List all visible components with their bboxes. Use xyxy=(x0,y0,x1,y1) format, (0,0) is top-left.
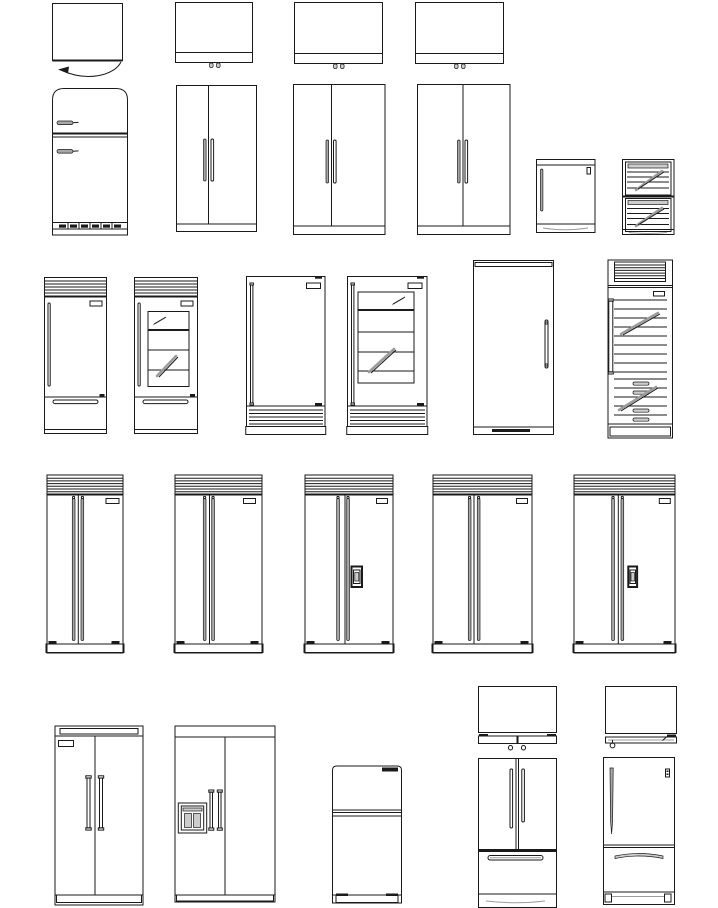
kick-tick-left xyxy=(49,641,57,644)
badge xyxy=(382,768,398,772)
block-plan-compact-door-swing[interactable] xyxy=(50,1,126,81)
left-handle xyxy=(458,140,461,183)
pedestal xyxy=(573,644,676,653)
block-sxs-grille-1[interactable] xyxy=(45,473,125,657)
freezer-handle xyxy=(57,121,79,125)
hinges xyxy=(210,63,221,68)
door-handles xyxy=(510,769,524,828)
block-french-door-bottom-freezer[interactable] xyxy=(476,756,559,908)
badge xyxy=(90,301,102,306)
cabinet-outline xyxy=(474,261,554,435)
block-top-freezer[interactable] xyxy=(330,763,404,905)
top-latch-mark xyxy=(417,277,424,279)
cabinet-outline xyxy=(606,687,677,734)
base-grille xyxy=(53,223,128,230)
kick-tick-right xyxy=(521,641,529,644)
kick-tick-right xyxy=(251,641,259,644)
block-plan-fridge-c[interactable] xyxy=(413,1,506,69)
block-wine-cooler-column[interactable] xyxy=(606,258,675,440)
cabinet-outline xyxy=(479,687,557,733)
top-grille xyxy=(433,478,532,494)
pedestal xyxy=(304,644,394,653)
block-single-door-bottom-freezer[interactable] xyxy=(601,755,677,908)
badge xyxy=(654,292,665,297)
latch-mark xyxy=(315,403,322,406)
door-handle xyxy=(351,283,354,405)
latch-mark xyxy=(190,394,195,397)
door-handle xyxy=(610,768,613,834)
door-handle xyxy=(250,283,253,405)
cabinet-outline xyxy=(537,160,596,233)
base-grille xyxy=(249,410,323,424)
wine-racks xyxy=(614,300,667,372)
block-column-fridge[interactable] xyxy=(471,258,556,440)
left-handle xyxy=(204,139,207,181)
cad-sheet xyxy=(0,0,718,908)
badge xyxy=(181,301,193,306)
cabinet-outline xyxy=(416,3,504,64)
cabinet-outline xyxy=(53,4,123,61)
kick-tick-right xyxy=(382,641,390,644)
cabinet-outline xyxy=(433,475,532,653)
hinge xyxy=(610,740,615,748)
door-handles xyxy=(337,496,350,640)
pedestal xyxy=(347,427,428,435)
pedestal xyxy=(174,644,263,653)
badge xyxy=(517,499,528,504)
block-sxs-capped-handles[interactable] xyxy=(53,724,145,907)
pedestal xyxy=(432,644,533,653)
pedestal xyxy=(610,427,671,436)
door-handle xyxy=(138,303,140,386)
door-handle xyxy=(541,169,543,211)
freezer-drawer-handle xyxy=(143,400,188,404)
door-handles xyxy=(209,790,223,830)
badge xyxy=(59,741,74,747)
base-shadow xyxy=(486,901,545,903)
block-undercounter-fridge[interactable] xyxy=(535,158,597,236)
pedestal xyxy=(177,895,274,901)
freezer-divider xyxy=(333,810,402,816)
upper-drawer xyxy=(626,162,672,195)
pedestal xyxy=(336,895,398,903)
top-latch-mark xyxy=(315,277,322,279)
dispenser xyxy=(178,803,206,833)
control-panel xyxy=(587,168,591,175)
block-undercounter-drawer-cooler[interactable] xyxy=(621,158,676,238)
cabinet-outline xyxy=(53,89,128,236)
dispenser xyxy=(628,567,637,588)
pedestal xyxy=(46,644,124,653)
lower-drawers xyxy=(614,379,667,421)
freezer-drawer-handle xyxy=(615,854,663,859)
block-upright-glass-base-grille[interactable] xyxy=(346,275,429,437)
hinges xyxy=(334,64,345,69)
top-grille xyxy=(45,281,107,297)
left-door xyxy=(479,736,518,744)
block-upright-base-grille[interactable] xyxy=(245,275,327,437)
block-side-by-side-medium-a[interactable] xyxy=(292,83,387,237)
left-handle-mark xyxy=(479,734,488,736)
top-grille xyxy=(615,262,666,282)
block-sxs-dispenser-left[interactable] xyxy=(173,724,277,905)
kick-shadow xyxy=(629,233,667,234)
badge xyxy=(307,283,321,289)
cabinet-outline xyxy=(294,85,386,235)
door-handle xyxy=(48,303,50,386)
right-door xyxy=(518,736,557,744)
door-handles xyxy=(612,496,624,640)
badge xyxy=(377,499,388,504)
kick-tick-left xyxy=(435,641,443,644)
block-plan-fridge-b[interactable] xyxy=(292,1,385,69)
block-plan-fridge-a[interactable] xyxy=(173,0,255,70)
cabinet-outline xyxy=(176,3,253,63)
block-plan-french-door[interactable] xyxy=(476,684,559,751)
hinges xyxy=(509,746,526,751)
right-handle xyxy=(211,139,214,181)
control-panel xyxy=(666,769,670,777)
top-grille xyxy=(305,478,393,494)
dispenser xyxy=(352,567,363,588)
cabinet-outline xyxy=(47,475,123,653)
top-grille xyxy=(47,478,123,494)
cabinet-outline xyxy=(418,85,511,235)
base xyxy=(605,894,671,902)
freezer-drawer xyxy=(479,856,557,895)
lower-drawer xyxy=(626,199,672,232)
door-handles xyxy=(203,496,214,640)
top-vent xyxy=(60,729,138,735)
top-grille xyxy=(574,478,675,494)
handle-mark xyxy=(667,735,676,737)
hinges xyxy=(455,64,466,69)
cabinet-outline xyxy=(479,759,557,908)
door-swing-arc xyxy=(61,62,121,76)
block-bottom-freezer-grille[interactable] xyxy=(43,276,109,436)
kick-tick-left xyxy=(576,641,584,644)
kick-tick-right xyxy=(664,641,672,644)
kick-tick-left xyxy=(307,641,315,644)
block-retro-top-freezer[interactable] xyxy=(50,85,130,238)
pedestal xyxy=(246,427,326,435)
latch-mark xyxy=(100,394,105,397)
badge xyxy=(659,499,670,504)
cabinet-outline xyxy=(574,475,675,653)
cabinet-outline xyxy=(177,86,257,232)
door-handle xyxy=(545,320,548,368)
badge xyxy=(408,283,422,289)
badge xyxy=(244,499,256,504)
block-sxs-grille-dispenser-2[interactable] xyxy=(572,473,677,657)
cabinet-outline xyxy=(333,766,402,903)
right-handle xyxy=(334,140,337,183)
right-handle-mark xyxy=(547,734,556,736)
top-grille xyxy=(135,281,198,297)
fridge-handle xyxy=(57,150,79,154)
block-sxs-grille-3[interactable] xyxy=(431,473,534,657)
cabinet-outline xyxy=(175,475,262,653)
base-grille xyxy=(350,410,425,424)
door-handle xyxy=(608,299,613,374)
left-handle xyxy=(326,140,329,183)
freezer-band xyxy=(479,849,557,852)
cabinet-outline xyxy=(604,758,675,905)
latch-mark xyxy=(417,403,424,406)
block-bottom-freezer-glass-grille[interactable] xyxy=(133,276,200,436)
block-side-by-side-small[interactable] xyxy=(175,84,258,234)
cabinet-outline xyxy=(247,277,326,427)
kick-tick-right xyxy=(112,641,120,644)
block-side-by-side-medium-b[interactable] xyxy=(416,83,512,237)
kick-tick-left xyxy=(177,641,185,644)
glass-window xyxy=(148,312,189,387)
kick-shadow xyxy=(543,228,588,230)
arrowhead-icon xyxy=(58,67,69,74)
right-handle xyxy=(465,140,468,183)
pedestal xyxy=(57,895,142,903)
badge xyxy=(106,499,119,504)
block-plan-single-door[interactable] xyxy=(603,684,679,751)
freezer-drawer-handle xyxy=(53,400,98,404)
block-sxs-grille-2[interactable] xyxy=(173,473,264,657)
block-sxs-grille-dispenser-1[interactable] xyxy=(303,473,395,657)
top-trim xyxy=(475,263,552,267)
cabinet-outline xyxy=(295,3,383,64)
glass-window xyxy=(358,292,414,383)
toe-vent xyxy=(492,429,530,432)
top-grille xyxy=(175,478,262,494)
